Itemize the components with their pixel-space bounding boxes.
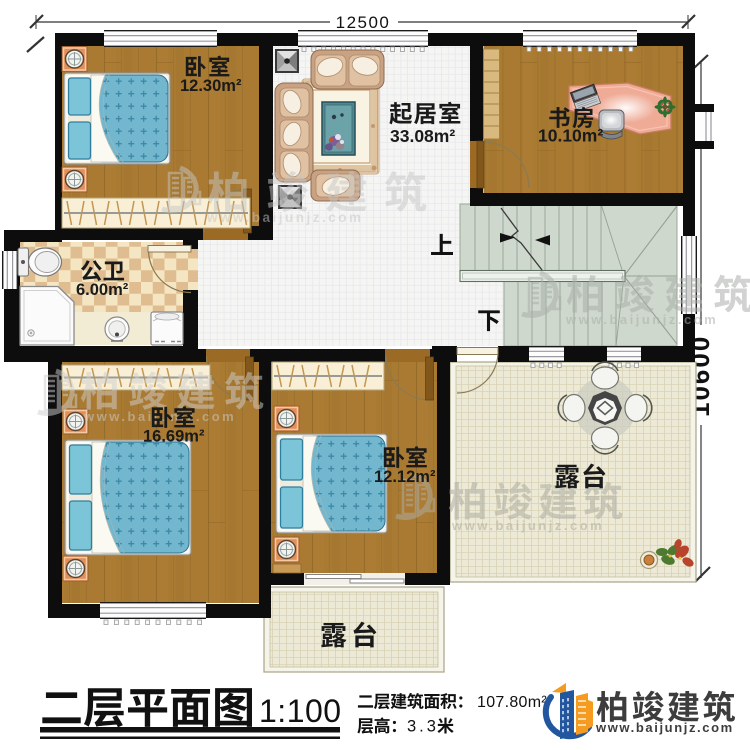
svg-text:www.baijunjz.com: www.baijunjz.com [565,312,718,327]
svg-text:107.80m²: 107.80m² [477,694,547,711]
svg-text:3.3: 3.3 [407,718,439,736]
svg-text:www.baijunjz.com: www.baijunjz.com [595,720,734,735]
svg-text:12.12m²: 12.12m² [374,468,436,486]
svg-text:16.69m²: 16.69m² [143,428,205,446]
svg-text:1:100: 1:100 [259,693,342,729]
svg-text:www.baijunjz.com: www.baijunjz.com [451,518,604,533]
svg-text:12500: 12500 [336,13,391,32]
svg-text:33.08m²: 33.08m² [390,126,455,146]
svg-text:12.30m²: 12.30m² [180,77,242,95]
svg-text:10.10m²: 10.10m² [538,126,603,146]
svg-text:6.00m²: 6.00m² [76,281,129,299]
svg-text:www.baijunjz.com: www.baijunjz.com [206,210,364,225]
